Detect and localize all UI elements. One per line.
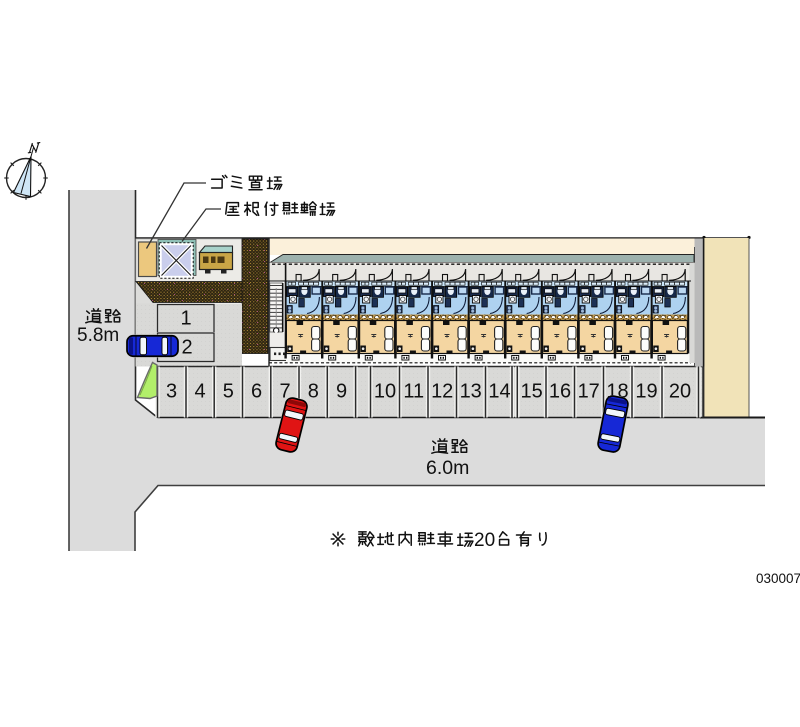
svg-text:11: 11 — [403, 381, 424, 403]
svg-text:6: 6 — [251, 381, 262, 403]
svg-text:030007: 030007 — [756, 571, 800, 586]
svg-text:8: 8 — [308, 381, 319, 403]
svg-text:5: 5 — [223, 381, 234, 403]
svg-text:19: 19 — [635, 381, 657, 403]
svg-text:5.8m: 5.8m — [77, 325, 119, 346]
svg-text:1: 1 — [180, 308, 191, 330]
svg-text:9: 9 — [336, 381, 347, 403]
svg-text:20: 20 — [474, 530, 495, 551]
svg-text:12: 12 — [431, 381, 453, 403]
svg-text:20: 20 — [669, 381, 691, 403]
svg-text:6.0m: 6.0m — [426, 457, 469, 479]
svg-text:3: 3 — [166, 381, 177, 403]
svg-text:2: 2 — [181, 337, 192, 359]
svg-text:4: 4 — [194, 381, 205, 403]
svg-text:14: 14 — [488, 381, 510, 403]
svg-text:16: 16 — [549, 381, 571, 403]
svg-text:17: 17 — [578, 381, 600, 403]
svg-text:15: 15 — [520, 381, 542, 403]
svg-text:13: 13 — [460, 381, 482, 403]
svg-text:10: 10 — [374, 381, 396, 403]
